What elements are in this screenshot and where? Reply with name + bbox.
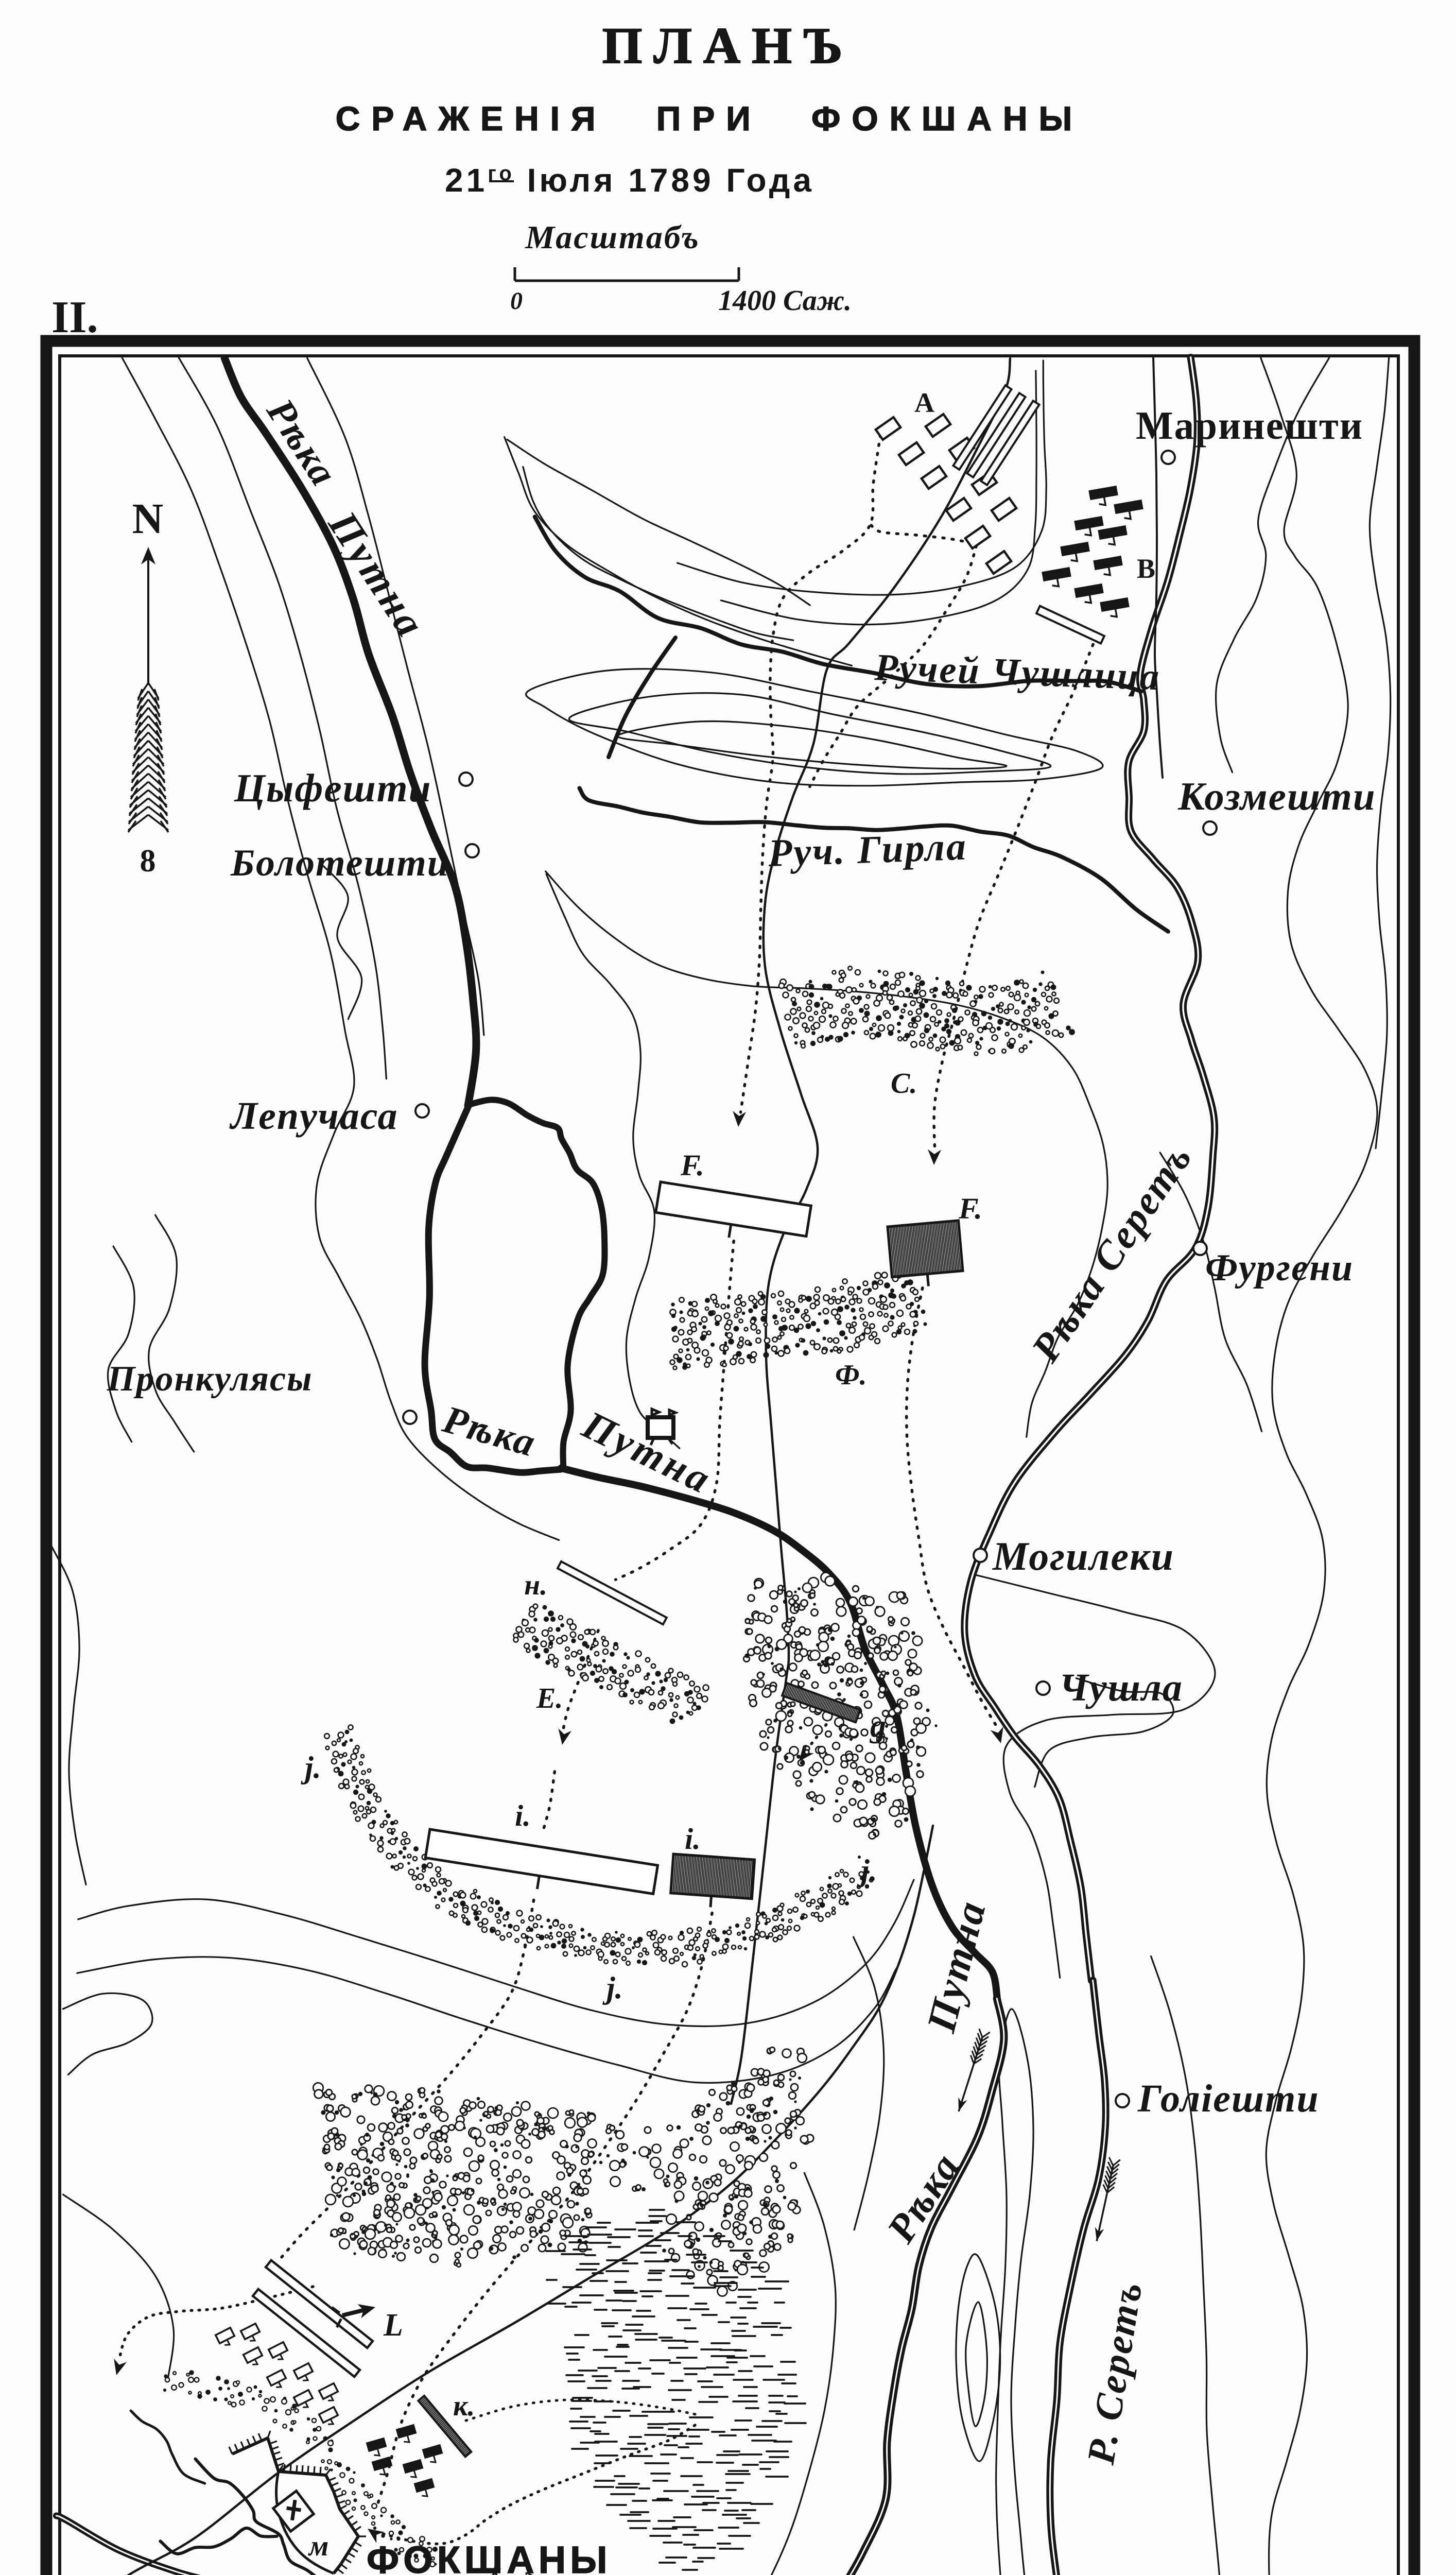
svg-text:ФОКШАНЫ: ФОКШАНЫ [367,2538,612,2575]
svg-text:Цыфешти: Цыфешти [234,766,431,810]
svg-text:i.: i. [685,1822,701,1856]
svg-text:F.: F. [958,1192,982,1225]
svg-text:Масштабъ: Масштабъ [525,219,700,255]
svg-text:к.: к. [453,2390,475,2422]
svg-text:Пронкулясы: Пронкулясы [107,1359,313,1399]
svg-text:g: g [869,1709,886,1744]
svg-text:Чушла: Чушла [1059,1666,1183,1709]
svg-text:Фургени: Фургени [1205,1247,1354,1289]
svg-text:N: N [132,495,164,543]
svg-text:Голіешти: Голіешти [1137,2077,1320,2120]
svg-text:i.: i. [515,1799,531,1832]
svg-text:Могилеки: Могилеки [992,1534,1174,1578]
svg-text:E.: E. [536,1683,563,1714]
svg-text:н.: н. [524,1569,547,1601]
svg-text:Руч. Гирла: Руч. Гирла [767,825,968,875]
svg-text:A: A [914,387,934,418]
svg-text:0: 0 [510,287,523,315]
svg-text:м: м [308,2530,328,2562]
svg-text:L: L [383,2308,403,2343]
svg-text:1400 Саж.: 1400 Саж. [718,285,852,317]
svg-text:СРАЖЕНІЯ ПРИ ФОКШАНЫ: СРАЖЕНІЯ ПРИ ФОКШАНЫ [336,99,1083,138]
svg-text:Болотешти: Болотешти [230,842,449,884]
svg-text:ПЛАНЪ: ПЛАНЪ [602,17,854,74]
svg-text:Ф.: Ф. [835,1359,867,1391]
svg-text:C.: C. [891,1068,917,1100]
svg-text:Лепучаса: Лепучаса [229,1094,398,1138]
svg-text:Козмешти: Козмешти [1177,774,1376,818]
svg-text:Маринешти: Маринешти [1136,403,1363,448]
svg-text:B: B [1137,553,1155,584]
svg-text:II.: II. [51,293,98,342]
svg-text:F.: F. [680,1148,704,1182]
svg-text:8: 8 [140,844,156,879]
